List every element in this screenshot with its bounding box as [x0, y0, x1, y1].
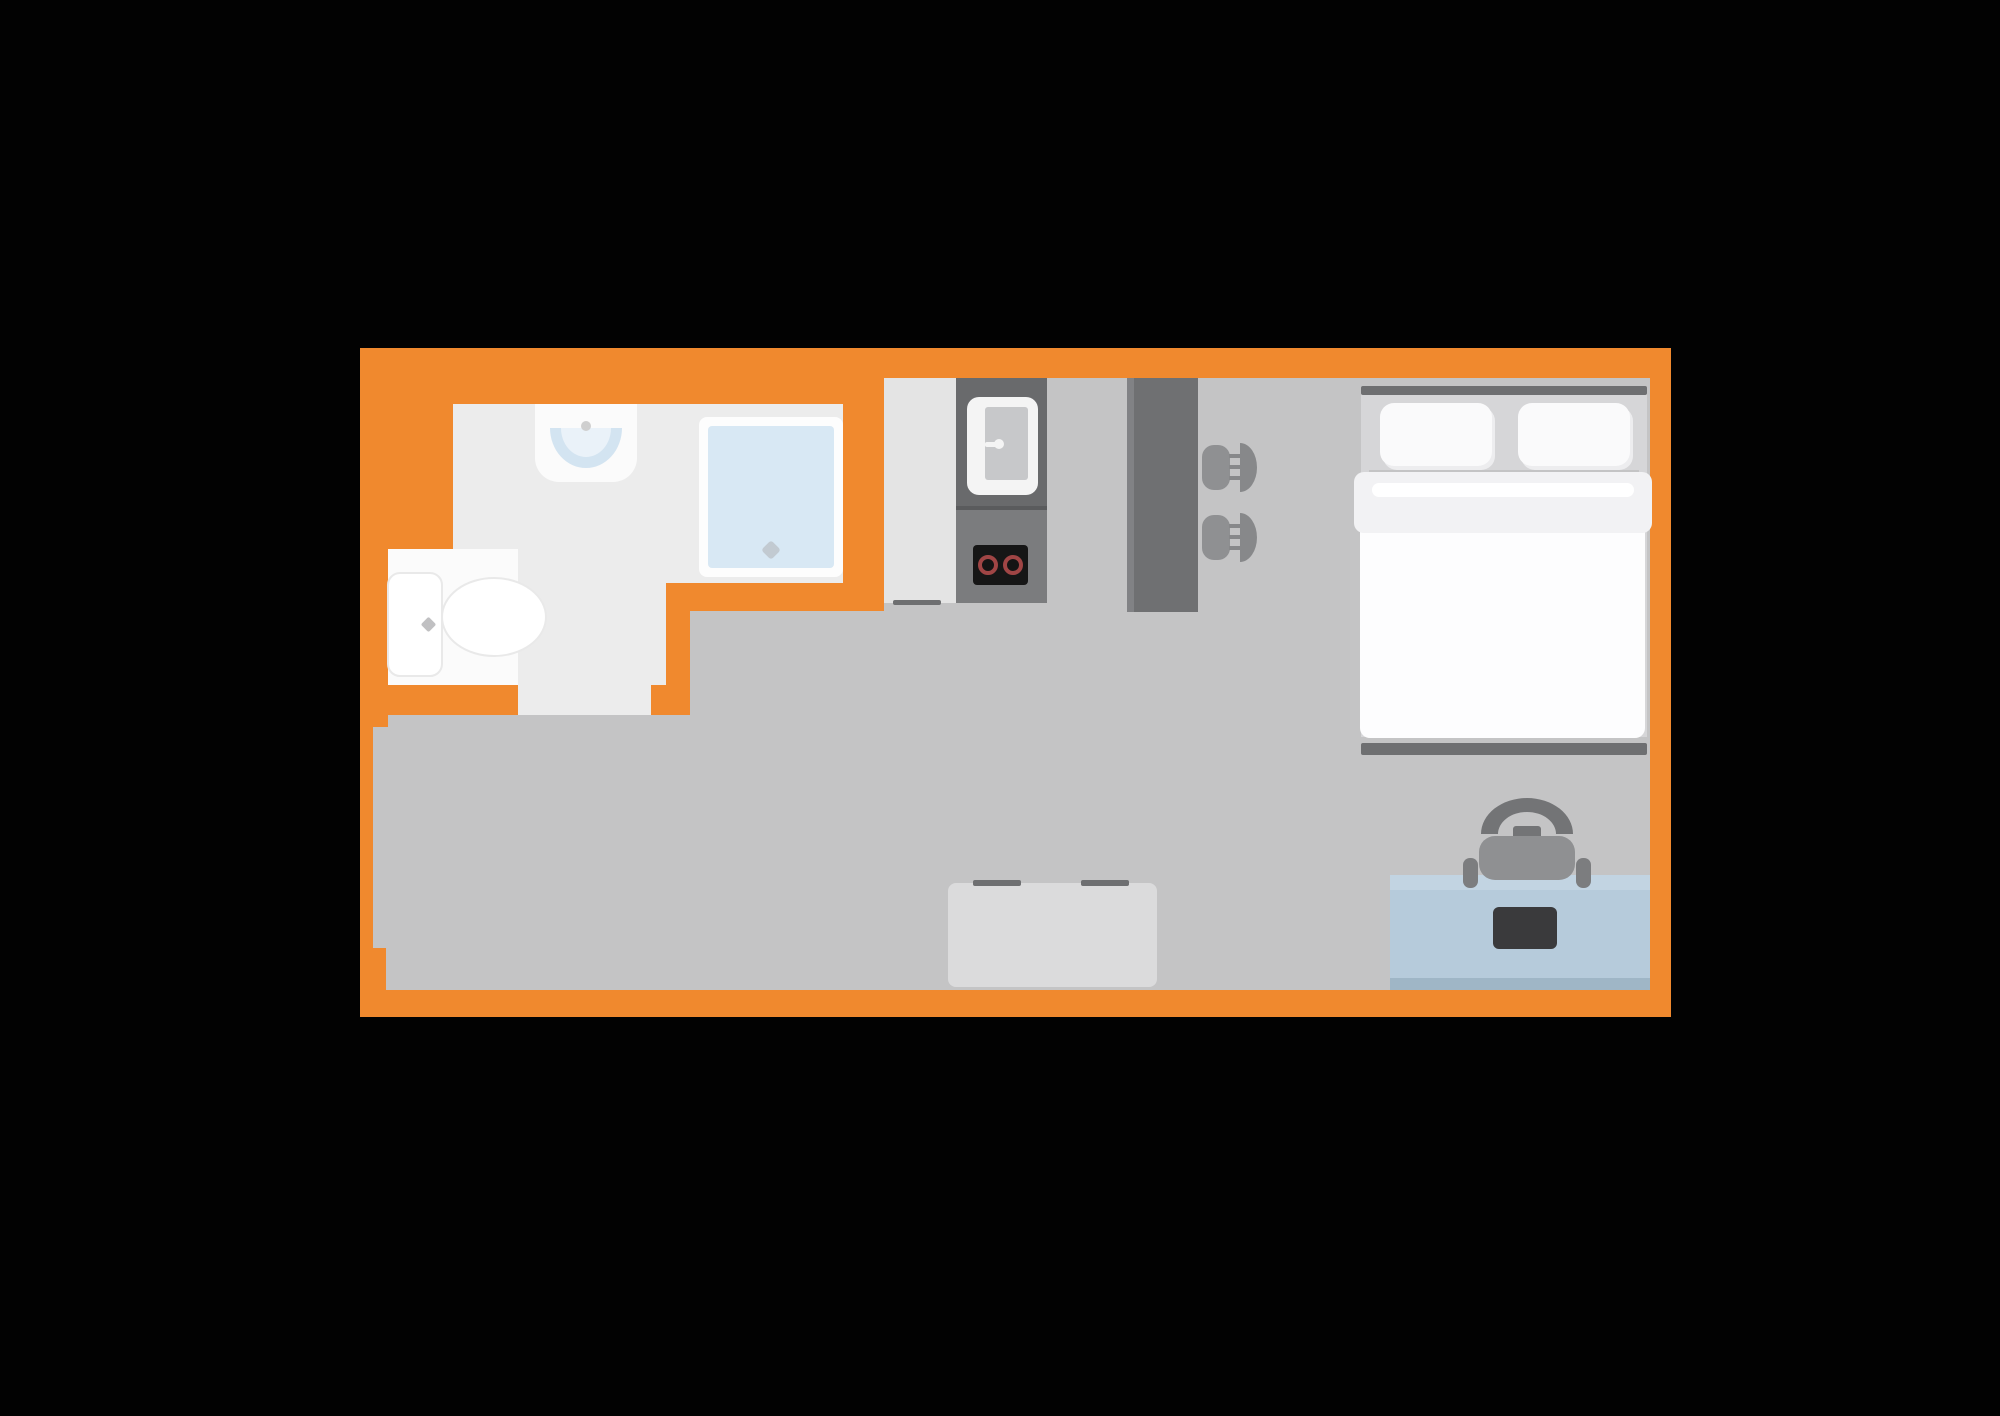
kitchen-threshold-mark — [893, 600, 941, 605]
chair-seat — [1479, 836, 1575, 880]
main-floor-left — [373, 715, 690, 990]
table-edge-mark-left — [973, 880, 1021, 886]
left-wall-upper-stub — [360, 348, 388, 727]
chair-armrest-left — [1463, 858, 1478, 888]
kitchen-floor-strip — [884, 378, 956, 603]
bed-sheet-fold — [1354, 472, 1652, 533]
bed-sheet-highlight — [1372, 483, 1634, 497]
stove-burner-right-icon — [1005, 557, 1021, 573]
bathroom-sink — [535, 404, 637, 482]
shower — [699, 417, 843, 577]
bed-foot-rail — [1361, 743, 1647, 755]
counter-slab — [1127, 378, 1198, 612]
stool-spindle — [1229, 524, 1241, 528]
stool-spindle — [1229, 454, 1241, 458]
stool-seat — [1202, 515, 1230, 560]
stove-burner-left-icon — [980, 557, 996, 573]
left-wall-lower-stub — [360, 948, 386, 1017]
table — [948, 880, 1157, 987]
stool-spindle — [1229, 465, 1241, 469]
counter-edge-highlight — [1127, 378, 1134, 612]
table-edge-mark-right — [1081, 880, 1129, 886]
bathroom-door-opening — [518, 685, 651, 715]
stool-spindle — [1229, 546, 1241, 550]
floor-plan-canvas — [0, 0, 2000, 1416]
stool-spindle — [1229, 476, 1241, 480]
kitchen-unit-divider — [956, 506, 1047, 510]
pillow-right — [1518, 403, 1630, 466]
pillow-left — [1380, 403, 1492, 466]
desk-front-edge — [1390, 978, 1650, 990]
stool-seat — [1202, 445, 1230, 490]
bed-headboard — [1361, 386, 1647, 395]
breakfast-counter — [1127, 378, 1198, 612]
chair-armrest-right — [1576, 858, 1591, 888]
double-bed — [1354, 386, 1652, 755]
laptop — [1493, 907, 1557, 949]
kitchen-faucet-icon — [994, 439, 1004, 449]
main-floor-middle — [690, 611, 884, 990]
toilet-bowl — [442, 578, 546, 656]
table-top — [948, 883, 1157, 987]
bathroom-sink-faucet-icon — [581, 421, 591, 431]
stool-spindle — [1229, 535, 1241, 539]
